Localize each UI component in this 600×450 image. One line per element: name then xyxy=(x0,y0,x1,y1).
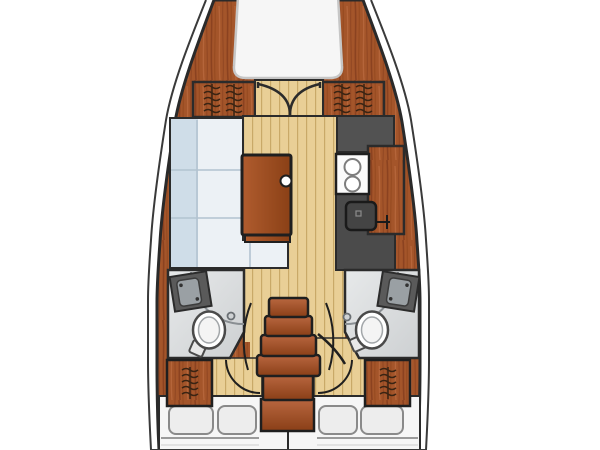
step xyxy=(269,298,308,317)
pillow xyxy=(319,406,357,434)
table-top xyxy=(242,155,291,235)
pillow xyxy=(169,406,213,434)
drain-icon xyxy=(344,314,351,321)
floor-plan-image xyxy=(0,0,600,450)
v-berth-mattress xyxy=(234,0,342,78)
salon-table xyxy=(242,155,292,242)
settee-cushion xyxy=(198,241,287,267)
starboard-head xyxy=(344,270,420,358)
settee-cushion xyxy=(198,119,242,241)
vanity-sink-icon xyxy=(377,271,419,311)
wardrobe-forward-port xyxy=(193,82,255,117)
drain-icon xyxy=(228,313,235,320)
forward-bulkhead xyxy=(193,80,384,118)
pillow xyxy=(218,406,256,434)
stove-icon xyxy=(336,154,369,194)
pillow xyxy=(361,406,403,434)
step xyxy=(257,355,320,376)
step xyxy=(265,316,312,336)
burner-icon xyxy=(345,159,361,175)
step xyxy=(263,375,313,400)
table-knob xyxy=(281,176,292,187)
yacht-floor-plan xyxy=(0,0,600,450)
vanity-sink-icon xyxy=(170,271,212,311)
step xyxy=(261,335,316,356)
port-head xyxy=(168,270,244,358)
wardrobe-forward-starboard xyxy=(322,82,384,117)
burner-icon xyxy=(345,177,360,192)
engine-box xyxy=(261,399,314,431)
galley xyxy=(336,116,404,270)
